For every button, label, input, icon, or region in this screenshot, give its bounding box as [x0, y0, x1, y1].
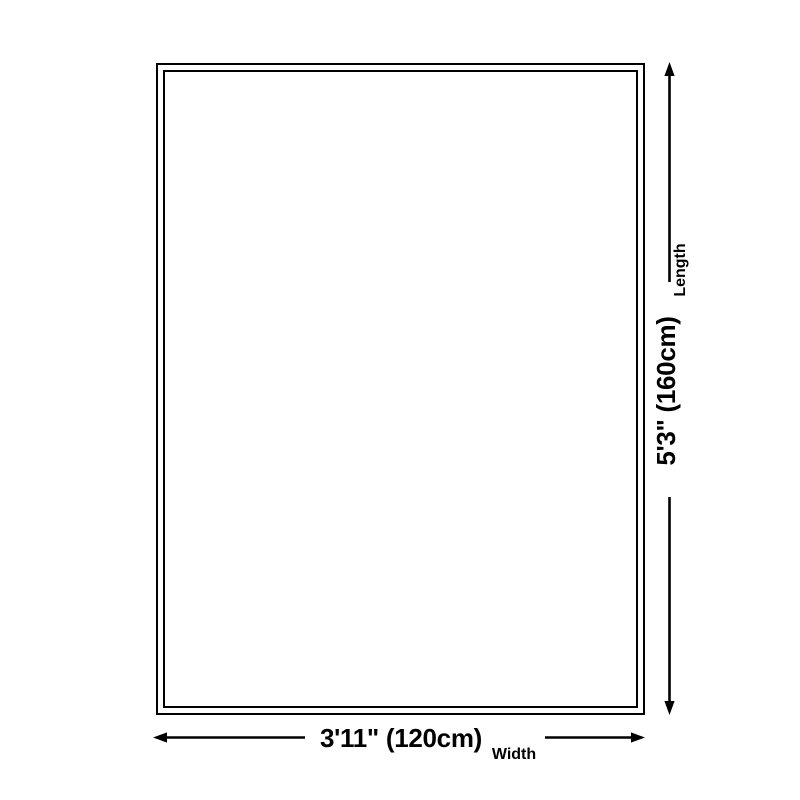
arrow-down-icon [664, 701, 674, 715]
rug-outline-outer [156, 63, 645, 715]
arrow-left-icon [153, 732, 167, 742]
arrow-up-icon [664, 62, 674, 76]
rug-outline-inner [163, 70, 638, 708]
arrow-right-icon [631, 732, 645, 742]
size-diagram: 5'3" (160cm) Length 3'11" (120cm) Width [0, 0, 800, 800]
length-label: Length [672, 225, 690, 315]
width-label: Width [469, 746, 559, 764]
